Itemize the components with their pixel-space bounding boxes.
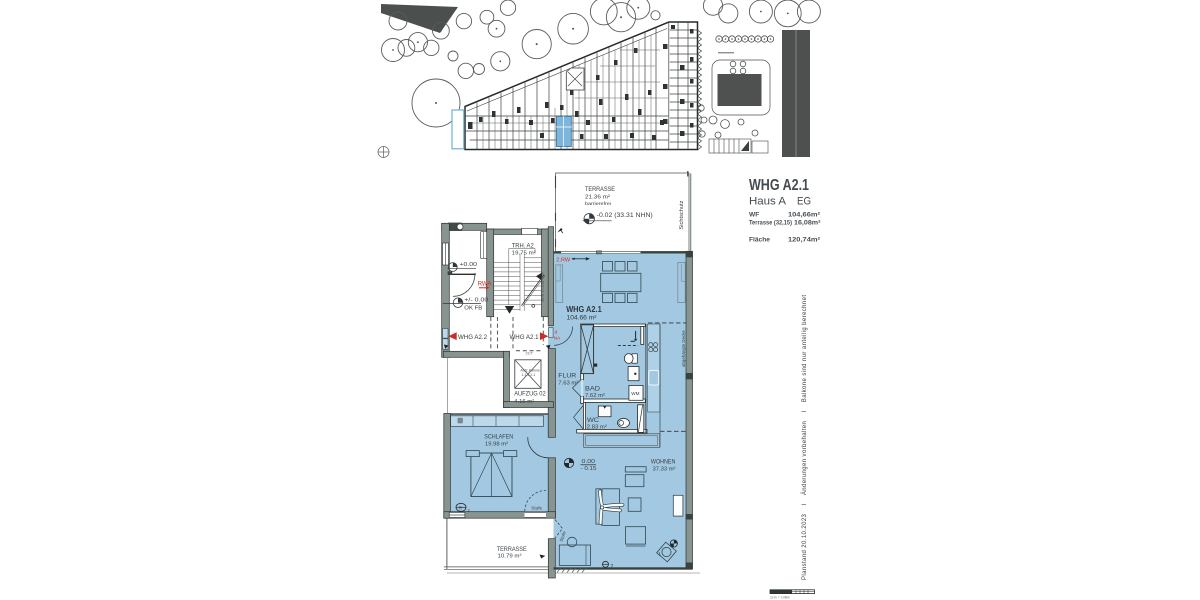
svg-text:- 0.15: - 0.15 <box>581 466 597 472</box>
svg-text:Haus A: Haus A <box>749 196 786 208</box>
svg-text:Aufz.Kabine: Aufz.Kabine <box>521 369 540 373</box>
svg-text:104,66m²: 104,66m² <box>788 212 821 219</box>
svg-text:1cm = 1m: 1cm = 1m <box>770 596 786 600</box>
svg-text:WHG A2.1: WHG A2.1 <box>566 305 602 314</box>
svg-text:19.75 m²: 19.75 m² <box>512 250 536 256</box>
svg-text:d: d <box>555 329 558 334</box>
svg-text:0.00: 0.00 <box>582 459 596 465</box>
svg-text:Fläche: Fläche <box>749 237 770 244</box>
svg-text:TRH. A2: TRH. A2 <box>512 242 535 249</box>
svg-text:21.36 m²: 21.36 m² <box>585 194 610 200</box>
svg-text:16,08m²: 16,08m² <box>794 220 821 227</box>
svg-text:FLUR: FLUR <box>558 372 577 379</box>
svg-text:EG: EG <box>797 196 811 208</box>
svg-text:7.62 m²: 7.62 m² <box>585 393 605 399</box>
svg-text:+/- 0.00: +/- 0.00 <box>464 298 488 304</box>
svg-text:WHG A2.1: WHG A2.1 <box>749 177 809 194</box>
svg-text:19.98 m²: 19.98 m² <box>485 441 508 447</box>
svg-text:TERRASSE: TERRASSE <box>497 546 527 553</box>
svg-text:Planstand 20.10.2023 I Ä: Planstand 20.10.2023 I Änderungen vorbeh… <box>801 295 808 580</box>
svg-text:2CT: 2CT <box>526 351 534 356</box>
svg-text:10.79 m²: 10.79 m² <box>498 553 522 559</box>
svg-text:+0.00: +0.00 <box>460 262 478 268</box>
svg-text:BAD: BAD <box>585 385 601 392</box>
svg-text:AUFZUG 02: AUFZUG 02 <box>514 392 546 398</box>
svg-text:RWA: RWA <box>478 281 492 287</box>
svg-text:abgehängte Decke: abgehängte Decke <box>681 330 686 367</box>
svg-text:Sichtschutz: Sichtschutz <box>679 200 685 230</box>
svg-text:OK FB: OK FB <box>464 306 482 312</box>
svg-text:Terrasse (32,15): Terrasse (32,15) <box>749 220 792 227</box>
svg-text:18 St 17,2/28: 18 St 17,2/28 <box>541 281 545 302</box>
svg-text:1.1 x 2.1: 1.1 x 2.1 <box>522 373 536 377</box>
svg-text:NA: NA <box>554 336 561 341</box>
svg-text:120,74m²: 120,74m² <box>788 237 821 244</box>
svg-text:104.66 m²: 104.66 m² <box>567 314 597 321</box>
svg-text:WF: WF <box>749 212 759 219</box>
svg-text:WM: WM <box>631 391 639 396</box>
svg-text:2.83 m²: 2.83 m² <box>587 425 607 431</box>
svg-text:37.33 m²: 37.33 m² <box>653 466 676 472</box>
svg-text:TERRASSE: TERRASSE <box>585 186 615 193</box>
svg-text:Stufe: Stufe <box>531 505 542 510</box>
svg-text:2.RW: 2.RW <box>556 257 571 263</box>
svg-text:WHG A2.2: WHG A2.2 <box>458 334 487 341</box>
svg-text:barrierefrei: barrierefrei <box>585 201 611 206</box>
svg-text:SCHLAFEN: SCHLAFEN <box>484 434 513 441</box>
svg-text:4.16 m²: 4.16 m² <box>514 399 534 405</box>
svg-text:5m: 5m <box>785 596 790 600</box>
svg-text:-0.02 (33.31 NHN): -0.02 (33.31 NHN) <box>597 212 653 219</box>
svg-text:WHG A2.1: WHG A2.1 <box>510 334 539 341</box>
svg-text:WOHNEN: WOHNEN <box>651 458 676 465</box>
svg-text:7.63 m²: 7.63 m² <box>558 380 578 386</box>
svg-text:WC: WC <box>587 417 600 424</box>
